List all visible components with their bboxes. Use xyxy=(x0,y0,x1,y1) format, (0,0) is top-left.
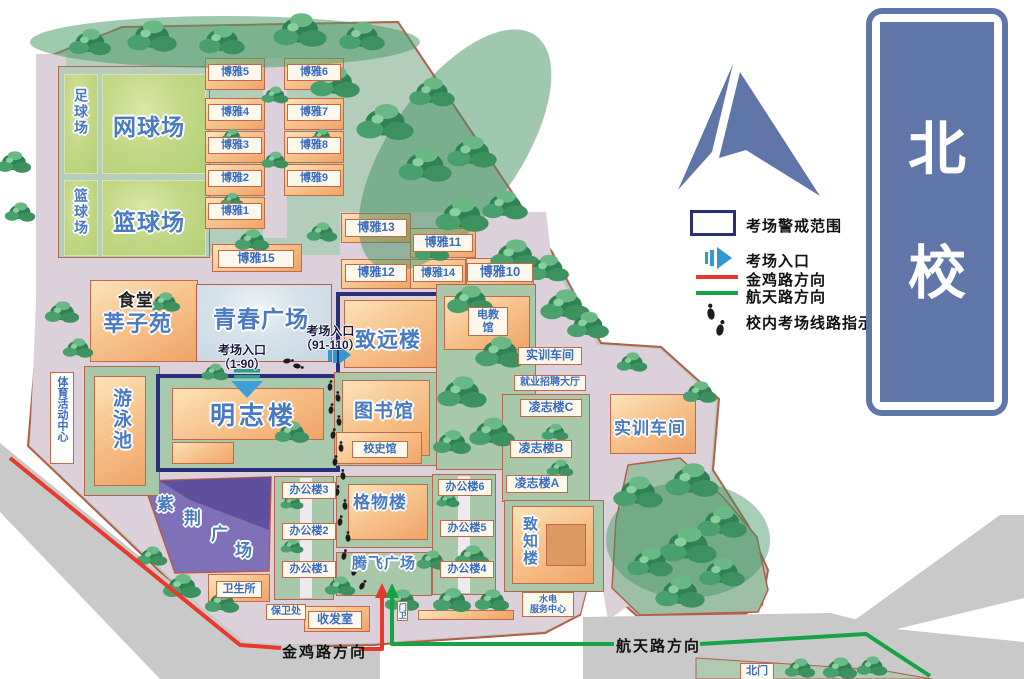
label-boya11: 博雅11 xyxy=(413,234,473,252)
label-boya10: 博雅10 xyxy=(467,263,533,282)
label-shixun-small: 实训车间 xyxy=(518,347,582,365)
label-office4: 办公楼4 xyxy=(440,561,494,578)
campus-badge-inner: 北 校 xyxy=(880,22,994,402)
label-shuidian: 水电 服务中心 xyxy=(522,592,574,617)
label-mingzhi: 明志楼 xyxy=(210,396,297,432)
label-boya7: 博雅7 xyxy=(287,104,341,121)
label-tiyu-center: 体育活动中心 xyxy=(54,376,70,442)
label-shuidian-line2: 服务中心 xyxy=(526,604,570,614)
label-office3: 办公楼3 xyxy=(282,482,336,499)
entrance1-title: 考场入口 xyxy=(218,343,266,357)
label-boya4: 博雅4 xyxy=(208,104,262,121)
hangtian-route-line xyxy=(385,583,930,676)
label-lingzhi-a: 凌志楼A xyxy=(506,475,568,493)
label-boya9: 博雅9 xyxy=(287,170,341,187)
badge-char-north: 北 xyxy=(908,121,966,179)
label-office2: 办公楼2 xyxy=(282,523,336,540)
legend-jinji-line xyxy=(696,275,738,279)
zhizhi-courtyard xyxy=(546,524,586,566)
label-boya14: 博雅14 xyxy=(413,265,463,282)
label-office5: 办公楼5 xyxy=(440,520,494,537)
label-swim: 游泳池 xyxy=(107,388,134,451)
label-zhiyuan: 致远楼 xyxy=(355,324,421,354)
label-beimen: 北门 xyxy=(740,663,774,679)
label-boya6: 博雅6 xyxy=(287,64,341,81)
entrance2-title: 考场入口 xyxy=(300,324,361,338)
canopy-se xyxy=(606,482,770,598)
label-library: 图书馆 xyxy=(354,396,414,423)
legend-entrance-label: 考场入口 xyxy=(746,250,810,271)
legend-alert-box-icon xyxy=(690,210,736,236)
legend-hangtian-line xyxy=(696,291,738,295)
label-lingzhi-c: 凌志楼C xyxy=(520,399,582,417)
label-zijing-2: 荆 xyxy=(184,504,202,529)
building-mingzhi-wing xyxy=(172,442,234,464)
label-boya12: 博雅12 xyxy=(345,264,407,282)
label-zijing-4: 场 xyxy=(235,536,253,561)
label-boya3: 博雅3 xyxy=(208,137,262,154)
label-boya15: 博雅15 xyxy=(218,250,294,268)
label-office6: 办公楼6 xyxy=(438,479,492,496)
label-shixun-big: 实训车间 xyxy=(614,414,686,439)
label-shoufa: 收发室 xyxy=(308,611,362,629)
label-boya5: 博雅5 xyxy=(208,64,262,81)
legend-route-label: 校内考场线路指示 xyxy=(746,312,874,333)
badge-char-school: 校 xyxy=(908,245,966,303)
se-slope xyxy=(612,458,768,615)
label-basketball-side: 篮球场 xyxy=(71,188,91,236)
label-boya13: 博雅13 xyxy=(345,219,407,237)
jinji-road-label: 金鸡路方向 xyxy=(282,641,367,662)
label-boya1: 博雅1 xyxy=(208,203,262,220)
north-road-branch xyxy=(798,515,1024,661)
campus-map: 足球场 篮球场 网球场 篮球场 博雅5 博雅6 博雅4 博雅7 博雅3 博雅8 … xyxy=(0,0,1024,679)
entrance1-range: （1-90） xyxy=(218,357,266,371)
hangtian-road-label: 航天路方向 xyxy=(616,635,701,656)
south-wall xyxy=(418,610,514,620)
entrance2-label: 考场入口 （91-110） xyxy=(300,324,361,353)
label-lingzhi-b: 凌志楼B xyxy=(510,440,572,458)
label-weisheng: 卫生所 xyxy=(216,581,262,598)
label-baowei: 保卫处 xyxy=(266,604,306,620)
legend-entrance-icon xyxy=(705,247,732,269)
label-zhizhi: 致知楼 xyxy=(519,516,540,567)
label-shuidian-line1: 水电 xyxy=(526,594,570,604)
legend-footprints-icon xyxy=(706,303,726,336)
label-basketball: 篮球场 xyxy=(113,203,185,237)
entrance2-range: （91-110） xyxy=(300,338,361,352)
label-football: 足球场 xyxy=(71,88,91,136)
label-zijing-3: 广 xyxy=(211,520,229,545)
label-xinziyuan: 莘子苑 xyxy=(103,306,172,338)
label-office1: 办公楼1 xyxy=(282,561,336,578)
label-tengfei-plaza: 腾飞广场 xyxy=(352,552,416,573)
entrance1-label: 考场入口 （1-90） xyxy=(218,343,266,372)
label-jiuye: 就业招聘大厅 xyxy=(514,375,586,391)
label-gewu: 格物楼 xyxy=(353,488,407,513)
legend-alert-label: 考场警戒范围 xyxy=(746,215,842,236)
label-xiaoshi: 校史馆 xyxy=(352,441,408,458)
label-menwei: 门卫 xyxy=(397,601,408,621)
north-arrow-icon xyxy=(678,64,820,196)
label-qingchun-plaza: 青春广场 xyxy=(213,300,309,334)
label-boya8: 博雅8 xyxy=(287,137,341,154)
label-tennis: 网球场 xyxy=(113,108,185,142)
label-zijing-1: 紫 xyxy=(157,490,175,515)
bottom-green-strip xyxy=(696,658,932,679)
legend-hangtian-label: 航天路方向 xyxy=(746,286,826,307)
label-boya2: 博雅2 xyxy=(208,170,262,187)
campus-badge: 北 校 xyxy=(866,8,1008,416)
label-dianjiao: 电教馆 xyxy=(468,307,508,336)
